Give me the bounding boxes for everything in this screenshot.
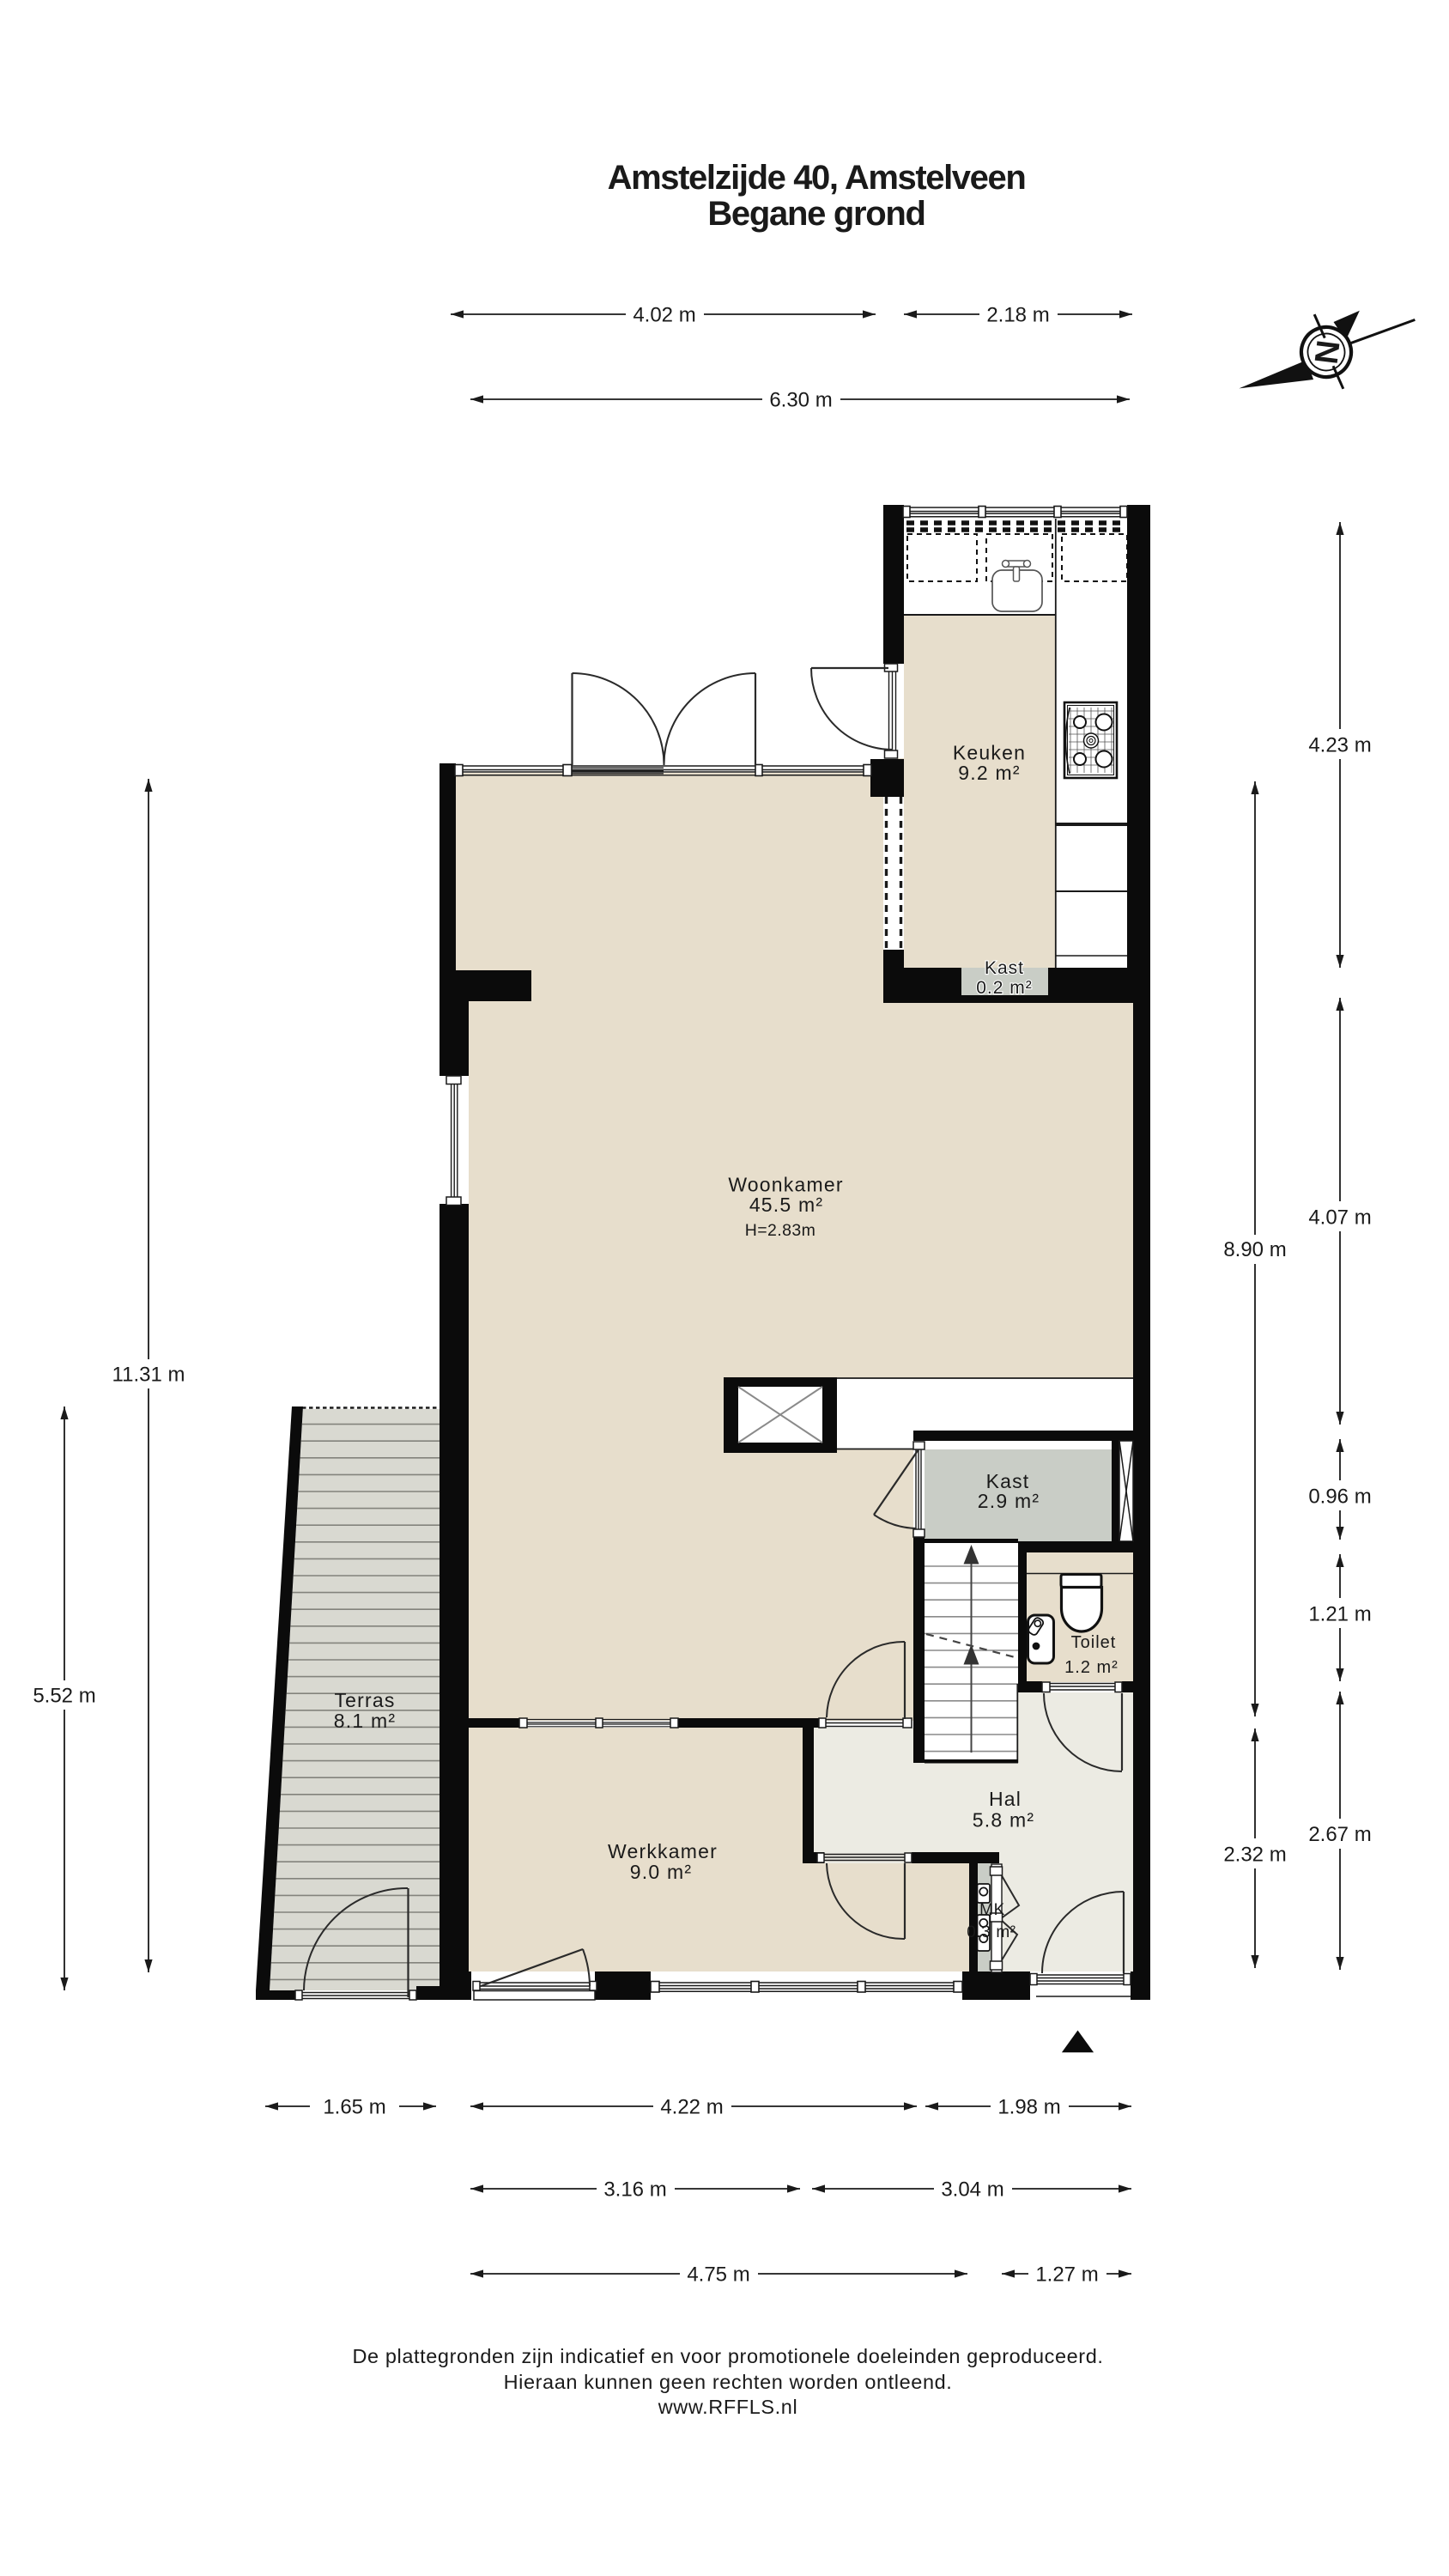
- svg-text:3.04 m: 3.04 m: [941, 2178, 1003, 2202]
- svg-text:Woonkamer: Woonkamer: [728, 1174, 843, 1196]
- svg-text:Amstelzijde 40, Amstelveen: Amstelzijde 40, Amstelveen: [608, 159, 1026, 197]
- svg-text:9.0 m²: 9.0 m²: [630, 1861, 692, 1883]
- svg-text:2.18 m: 2.18 m: [986, 304, 1049, 327]
- svg-text:H=2.83m: H=2.83m: [745, 1221, 815, 1240]
- svg-text:2.9 m²: 2.9 m²: [978, 1490, 1040, 1512]
- svg-text:Begane grond: Begane grond: [707, 195, 925, 233]
- svg-text:1.98 m: 1.98 m: [997, 2096, 1060, 2119]
- svg-text:Hal: Hal: [989, 1788, 1022, 1810]
- svg-text:Kast: Kast: [985, 958, 1024, 978]
- svg-text:MK: MK: [979, 1901, 1005, 1919]
- svg-text:Toilet: Toilet: [1071, 1633, 1117, 1652]
- svg-text:N: N: [1307, 338, 1345, 366]
- svg-text:1.65 m: 1.65 m: [323, 2096, 385, 2119]
- svg-text:1.27 m: 1.27 m: [1035, 2263, 1098, 2287]
- svg-text:Werkkamer: Werkkamer: [608, 1840, 718, 1862]
- svg-text:2.67 m: 2.67 m: [1308, 1823, 1371, 1846]
- svg-text:www.RFFLS.nl: www.RFFLS.nl: [658, 2396, 798, 2418]
- svg-text:1.2 m²: 1.2 m²: [1064, 1658, 1119, 1677]
- svg-text:4.02 m: 4.02 m: [633, 304, 695, 327]
- svg-text:0.96 m: 0.96 m: [1308, 1485, 1371, 1509]
- svg-text:8.90 m: 8.90 m: [1223, 1238, 1286, 1261]
- svg-text:2.32 m: 2.32 m: [1223, 1844, 1286, 1867]
- svg-text:4.07 m: 4.07 m: [1308, 1206, 1371, 1230]
- svg-text:6.30 m: 6.30 m: [769, 389, 832, 412]
- svg-text:4.23 m: 4.23 m: [1308, 734, 1371, 757]
- svg-text:De plattegronden zijn indicati: De plattegronden zijn indicatief en voor…: [352, 2345, 1103, 2367]
- svg-text:3.16 m: 3.16 m: [603, 2178, 666, 2202]
- svg-text:Hieraan kunnen geen rechten wo: Hieraan kunnen geen rechten worden ontle…: [504, 2371, 953, 2393]
- svg-text:0.2 m²: 0.2 m²: [976, 978, 1033, 998]
- svg-text:11.31 m: 11.31 m: [112, 1364, 185, 1387]
- svg-text:9.2 m²: 9.2 m²: [958, 762, 1020, 784]
- svg-text:5.8 m²: 5.8 m²: [973, 1809, 1034, 1832]
- svg-text:8.1 m²: 8.1 m²: [334, 1710, 396, 1732]
- svg-text:1.21 m: 1.21 m: [1308, 1603, 1371, 1626]
- svg-text:Keuken: Keuken: [953, 742, 1026, 764]
- svg-text:5.52 m: 5.52 m: [33, 1685, 95, 1708]
- svg-text:Terras: Terras: [334, 1689, 395, 1711]
- svg-text:4.22 m: 4.22 m: [660, 2096, 723, 2119]
- svg-text:4.75 m: 4.75 m: [687, 2263, 749, 2287]
- svg-text:0.3 m²: 0.3 m²: [967, 1923, 1016, 1941]
- svg-text:45.5 m²: 45.5 m²: [749, 1194, 823, 1216]
